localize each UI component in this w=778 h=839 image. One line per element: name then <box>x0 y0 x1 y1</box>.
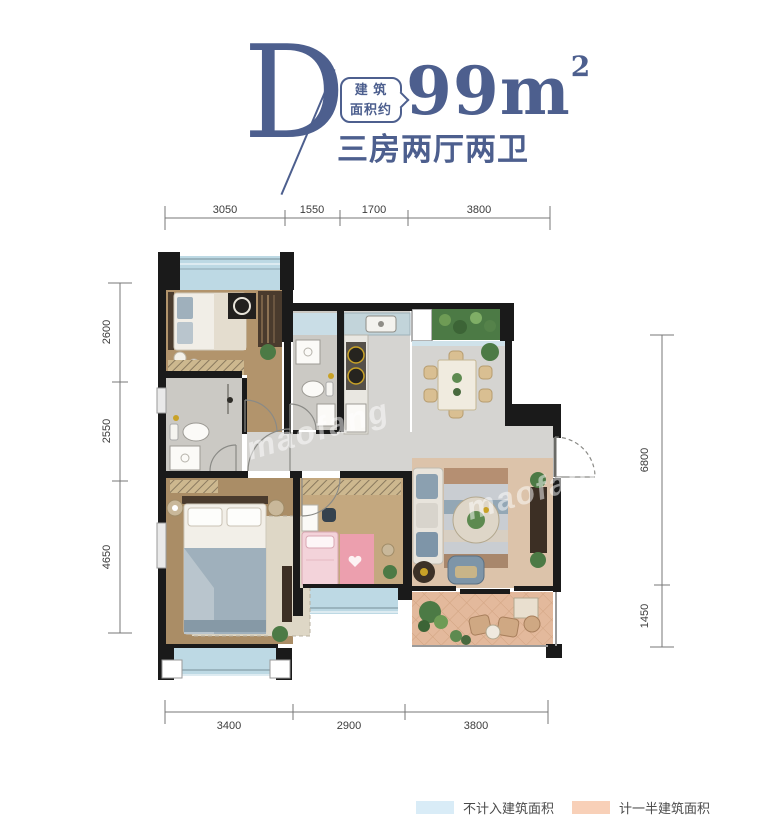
legend-label-not-counted: 不计入建筑面积 <box>463 798 554 817</box>
dim-left-0: 2600 <box>101 320 113 344</box>
legend-label-half-counted: 计一半建筑面积 <box>619 798 710 817</box>
kids-bed <box>302 532 338 586</box>
plant <box>383 565 397 579</box>
dim-left-1: 2550 <box>101 419 113 443</box>
room-kids-bay <box>303 588 398 614</box>
utility-shaft <box>412 309 432 341</box>
living-sofa <box>413 468 443 564</box>
legend: 不计入建筑面积 计一半建筑面积 <box>416 798 710 817</box>
dim-left-2: 4650 <box>101 545 113 569</box>
dim-top-2: 1700 <box>362 204 386 216</box>
svg-text:maofang: maofang <box>292 232 444 307</box>
room-balcony-top <box>180 256 280 290</box>
dimensions-bottom: 3400 2900 3800 <box>165 700 548 732</box>
dimensions-right: 6800 1450 <box>639 335 674 647</box>
floor-plan: maofang maofang maofang 3050 1550 1700 3… <box>0 0 778 839</box>
dim-right-1: 1450 <box>639 604 651 628</box>
floorplan-page: D 建 筑 面积约 99m2 三房两厅两卫 <box>0 0 778 839</box>
legend-swatch-peach <box>572 801 610 814</box>
room-master-bay <box>174 648 276 676</box>
dim-bottom-0: 3400 <box>217 720 241 732</box>
plant <box>481 343 499 361</box>
master-tv-console <box>282 566 292 622</box>
bedroom2-wardrobe <box>258 291 282 347</box>
dim-bottom-2: 3800 <box>464 720 488 732</box>
dim-top-0: 3050 <box>213 204 237 216</box>
dim-right-0: 6800 <box>639 448 651 472</box>
nightstand <box>268 500 284 516</box>
plant <box>260 344 276 360</box>
living-armchair <box>448 556 484 584</box>
kids-closet <box>302 480 401 495</box>
dim-top-3: 3800 <box>467 204 491 216</box>
plant <box>272 626 288 642</box>
legend-item-not-counted: 不计入建筑面积 <box>416 798 554 817</box>
legend-swatch-blue <box>416 801 454 814</box>
master-bed <box>182 496 268 634</box>
dimensions-top: 3050 1550 1700 3800 <box>165 204 550 230</box>
bedroom2-rug <box>228 293 256 319</box>
dimensions-left: 2600 2550 4650 <box>101 283 132 633</box>
dim-bottom-1: 2900 <box>337 720 361 732</box>
dim-top-1: 1550 <box>300 204 324 216</box>
master-closet <box>170 480 218 493</box>
legend-item-half-counted: 计一半建筑面积 <box>572 798 710 817</box>
